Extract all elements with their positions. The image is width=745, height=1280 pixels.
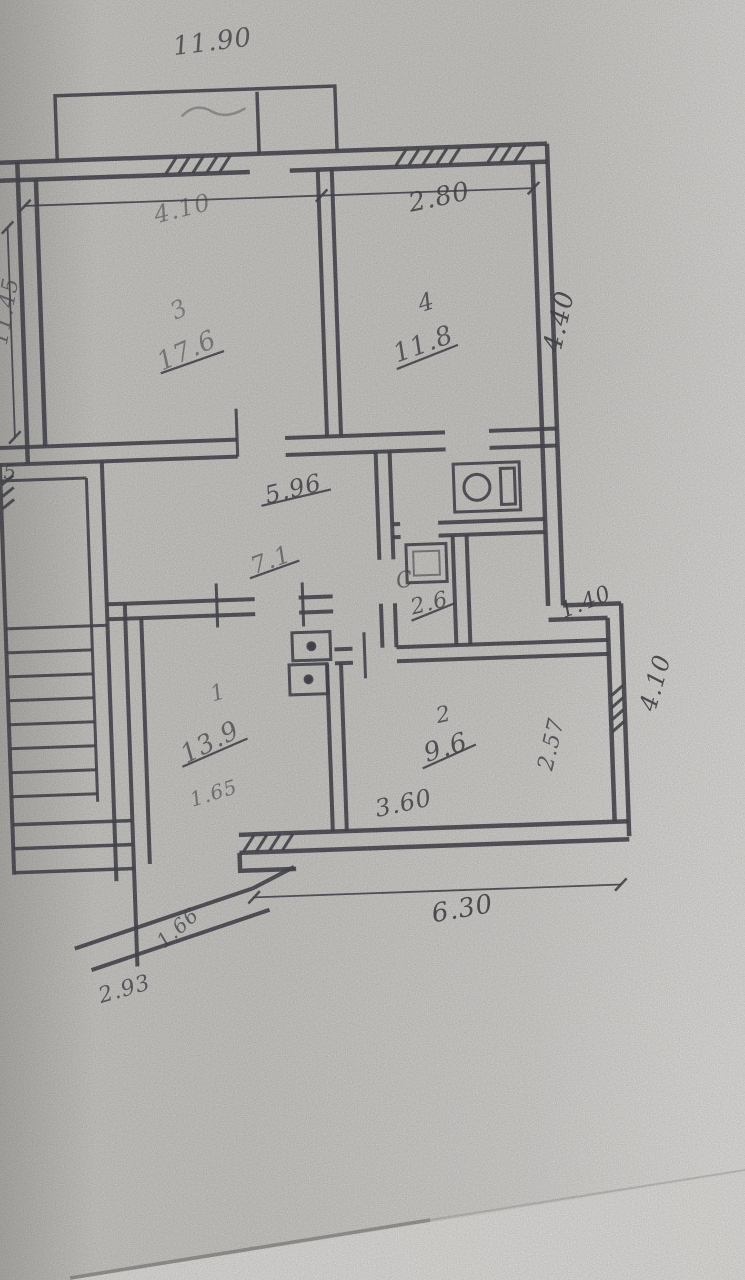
grain-light-overlay [0, 0, 745, 1280]
photographed-floor-plan: 11.90 4.10 2.80 11.45 3 17.6 4 11.8 4.40… [0, 0, 745, 1280]
floor-plan-photo: 11.90 4.10 2.80 11.45 3 17.6 4 11.8 4.40… [0, 0, 745, 1280]
